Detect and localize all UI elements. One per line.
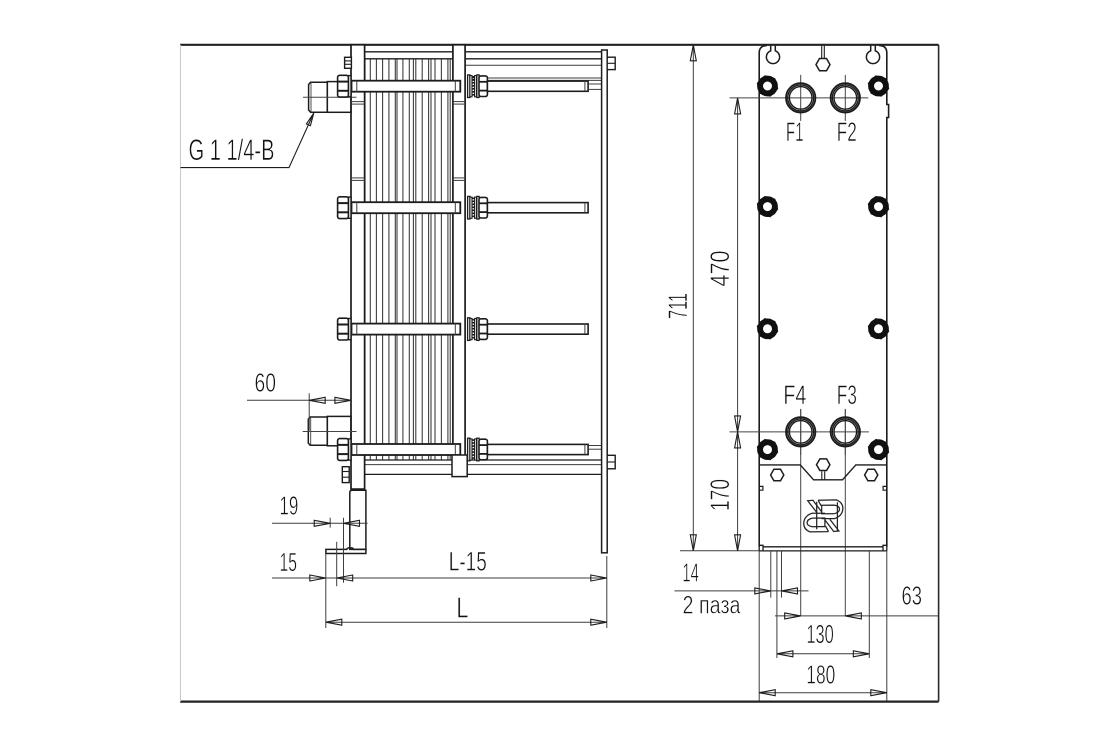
- svg-text:14: 14: [682, 558, 699, 588]
- svg-text:G 1 1/4-B: G 1 1/4-B: [189, 134, 275, 167]
- svg-text:170: 170: [705, 479, 735, 511]
- svg-text:F1: F1: [786, 117, 804, 147]
- svg-text:L: L: [456, 593, 468, 625]
- svg-text:711: 711: [663, 293, 693, 319]
- svg-text:180: 180: [806, 659, 835, 689]
- svg-text:19: 19: [279, 491, 298, 521]
- svg-text:F2: F2: [837, 117, 857, 147]
- svg-text:60: 60: [254, 367, 276, 397]
- svg-text:L-15: L-15: [449, 547, 487, 577]
- svg-text:63: 63: [902, 580, 923, 610]
- svg-text:130: 130: [806, 619, 834, 649]
- svg-text:2 паза: 2 паза: [683, 592, 741, 620]
- svg-text:F3: F3: [837, 380, 857, 410]
- svg-text:15: 15: [279, 547, 297, 577]
- svg-text:470: 470: [705, 251, 735, 287]
- svg-text:F4: F4: [783, 380, 806, 410]
